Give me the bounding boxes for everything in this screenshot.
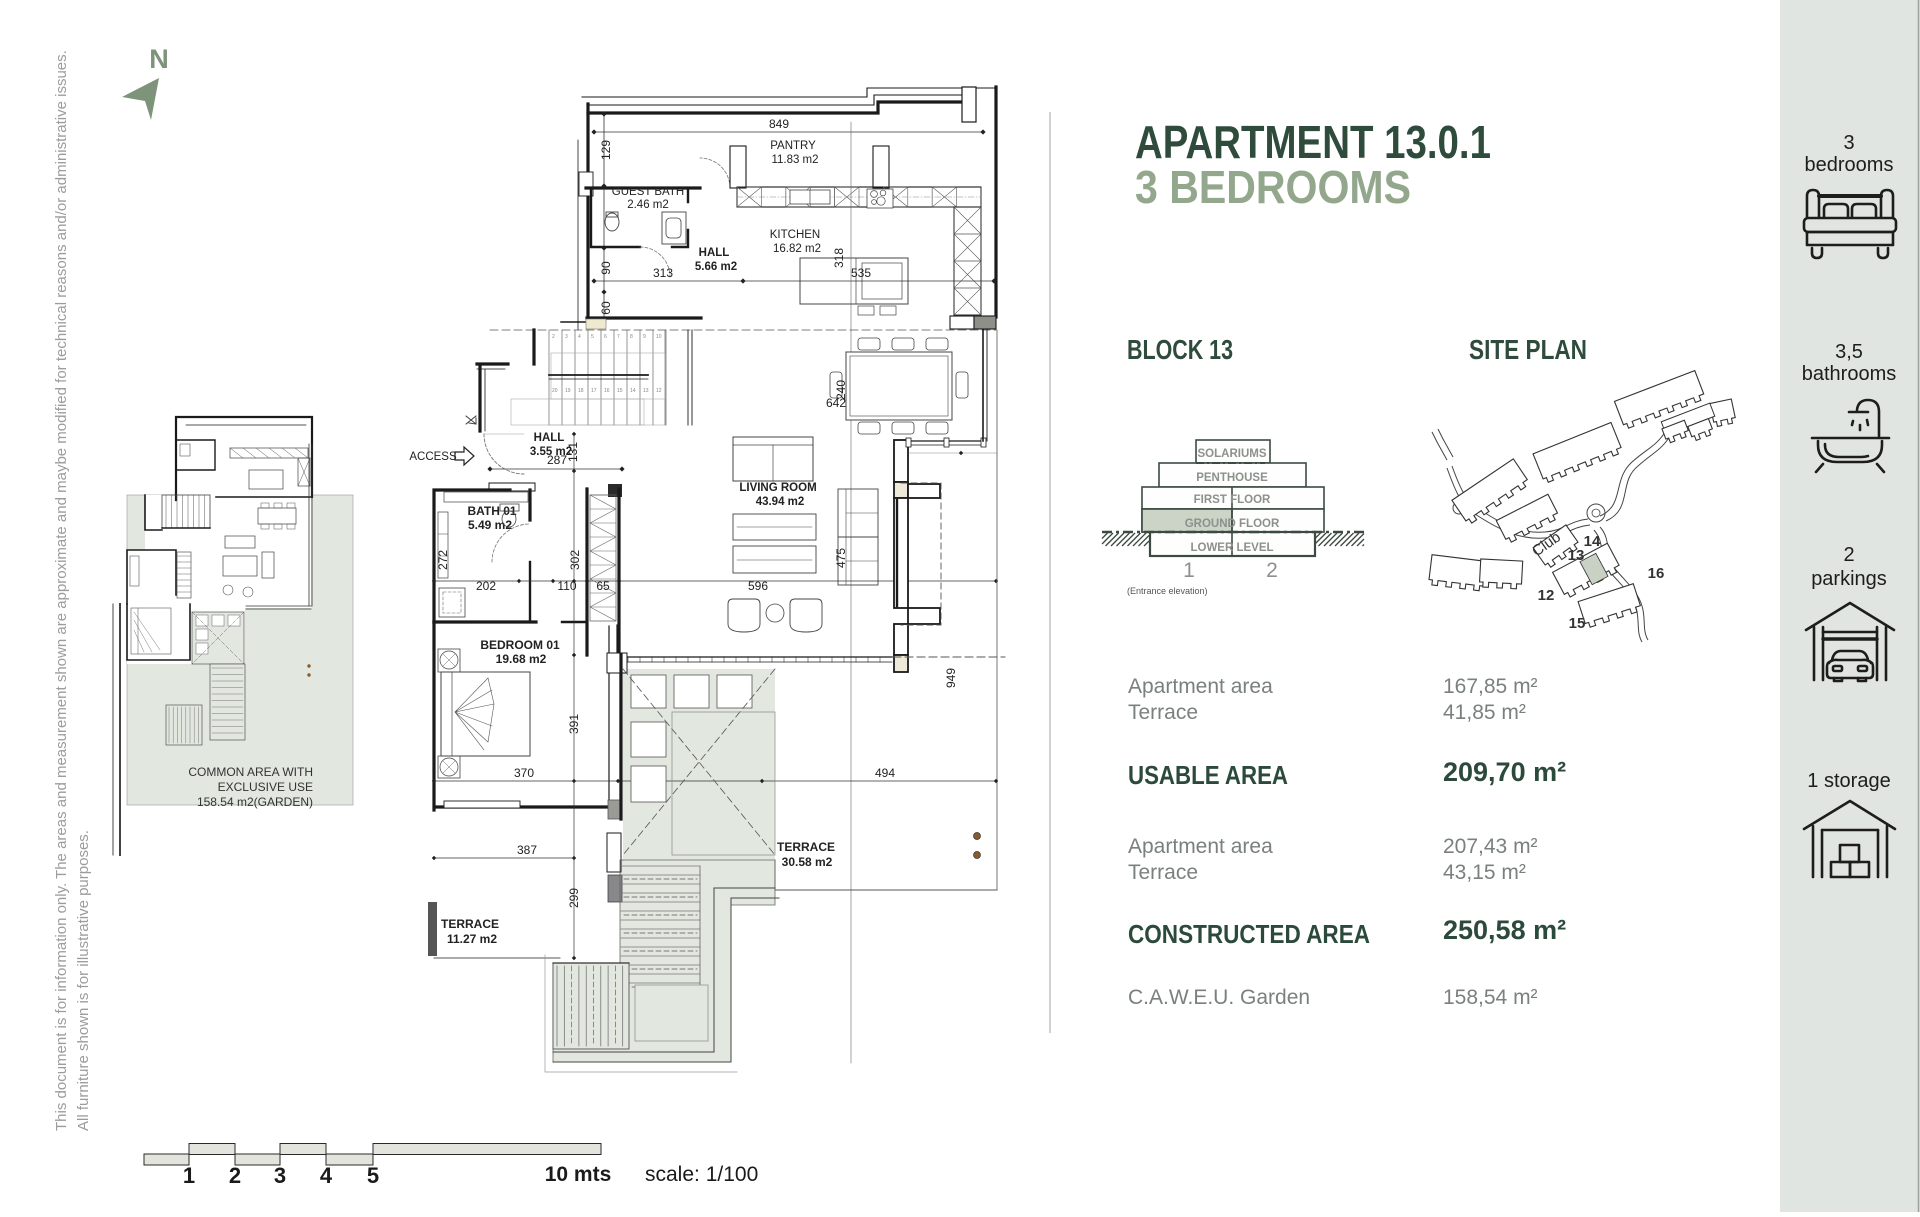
svg-text:2: 2 bbox=[552, 334, 555, 340]
svg-text:Terrace: Terrace bbox=[1128, 861, 1198, 884]
svg-text:COMMON AREA WITH: COMMON AREA WITH bbox=[188, 765, 313, 779]
svg-text:30.58 m2: 30.58 m2 bbox=[782, 855, 833, 869]
svg-text:16.82 m2: 16.82 m2 bbox=[773, 243, 821, 255]
svg-text:CONSTRUCTED AREA: CONSTRUCTED AREA bbox=[1128, 919, 1370, 949]
svg-text:3: 3 bbox=[565, 334, 568, 340]
svg-text:2: 2 bbox=[1266, 559, 1278, 582]
svg-text:PENTHOUSE: PENTHOUSE bbox=[1196, 472, 1268, 484]
svg-text:2: 2 bbox=[229, 1163, 241, 1188]
svg-text:parkings: parkings bbox=[1811, 568, 1887, 590]
svg-text:KITCHEN: KITCHEN bbox=[770, 229, 820, 241]
svg-text:5.66 m2: 5.66 m2 bbox=[695, 261, 737, 273]
svg-text:scale: 1/100: scale: 1/100 bbox=[645, 1163, 758, 1186]
svg-text:2.46 m2: 2.46 m2 bbox=[627, 199, 669, 211]
svg-text:370: 370 bbox=[514, 766, 534, 780]
svg-text:19.68 m2: 19.68 m2 bbox=[496, 652, 547, 666]
svg-text:6: 6 bbox=[604, 334, 607, 340]
svg-text:20: 20 bbox=[552, 388, 558, 394]
svg-text:GUEST BATH: GUEST BATH bbox=[612, 186, 684, 198]
svg-text:129: 129 bbox=[599, 140, 613, 160]
svg-text:C.A.W.E.U. Garden: C.A.W.E.U. Garden bbox=[1128, 986, 1310, 1009]
svg-text:EXCLUSIVE USE: EXCLUSIVE USE bbox=[218, 780, 313, 794]
svg-text:Apartment area: Apartment area bbox=[1128, 835, 1273, 858]
svg-text:BLOCK 13: BLOCK 13 bbox=[1127, 334, 1233, 365]
svg-text:14: 14 bbox=[630, 388, 636, 394]
svg-text:302: 302 bbox=[568, 550, 582, 570]
svg-text:596: 596 bbox=[748, 579, 768, 593]
svg-text:90: 90 bbox=[599, 261, 613, 275]
svg-text:(Entrance elevation): (Entrance elevation) bbox=[1127, 586, 1208, 596]
svg-text:4: 4 bbox=[320, 1163, 333, 1188]
svg-text:TERRACE: TERRACE bbox=[441, 917, 499, 931]
svg-text:1: 1 bbox=[1183, 559, 1195, 582]
svg-text:287: 287 bbox=[547, 453, 567, 467]
svg-text:18: 18 bbox=[578, 388, 584, 394]
svg-text:158.54 m2(GARDEN): 158.54 m2(GARDEN) bbox=[197, 795, 313, 809]
svg-text:19: 19 bbox=[565, 388, 571, 394]
svg-text:3: 3 bbox=[274, 1163, 286, 1188]
svg-text:131: 131 bbox=[566, 442, 580, 462]
svg-text:15: 15 bbox=[617, 388, 623, 394]
svg-text:11.27 m2: 11.27 m2 bbox=[447, 932, 497, 946]
svg-text:5: 5 bbox=[367, 1163, 379, 1188]
svg-text:313: 313 bbox=[653, 266, 673, 280]
svg-text:1 storage: 1 storage bbox=[1807, 770, 1890, 792]
svg-text:13: 13 bbox=[643, 388, 649, 394]
svg-text:bathrooms: bathrooms bbox=[1802, 363, 1897, 385]
svg-text:HALL: HALL bbox=[534, 432, 565, 444]
svg-text:60: 60 bbox=[599, 301, 613, 315]
svg-text:13: 13 bbox=[1568, 547, 1585, 564]
svg-text:15: 15 bbox=[1569, 615, 1586, 632]
svg-text:17: 17 bbox=[591, 388, 597, 394]
svg-text:299: 299 bbox=[567, 888, 581, 908]
svg-text:167,85 m²: 167,85 m² bbox=[1443, 675, 1538, 698]
svg-text:849: 849 bbox=[769, 117, 789, 131]
svg-text:4: 4 bbox=[578, 334, 581, 340]
svg-text:USABLE AREA: USABLE AREA bbox=[1128, 760, 1288, 790]
svg-text:9: 9 bbox=[643, 334, 646, 340]
svg-text:158,54 m²: 158,54 m² bbox=[1443, 986, 1538, 1009]
svg-text:GROUND FLOOR: GROUND FLOOR bbox=[1185, 518, 1280, 530]
svg-text:535: 535 bbox=[851, 266, 871, 280]
svg-text:207,43 m²: 207,43 m² bbox=[1443, 835, 1538, 858]
svg-text:SOLARIUMS: SOLARIUMS bbox=[1198, 448, 1267, 460]
svg-text:This document is for informati: This document is for information only. T… bbox=[53, 50, 70, 1131]
svg-text:43,15 m²: 43,15 m² bbox=[1443, 861, 1526, 884]
svg-text:11.83 m2: 11.83 m2 bbox=[771, 154, 818, 166]
svg-text:LIVING ROOM: LIVING ROOM bbox=[739, 482, 816, 494]
svg-text:3: 3 bbox=[1843, 132, 1854, 154]
svg-text:642: 642 bbox=[826, 396, 846, 410]
svg-text:All furniture shown is for ill: All furniture shown is for illustrative … bbox=[75, 830, 92, 1131]
svg-text:Terrace: Terrace bbox=[1128, 701, 1198, 724]
svg-text:5: 5 bbox=[591, 334, 594, 340]
svg-text:2: 2 bbox=[1843, 544, 1854, 566]
svg-text:387: 387 bbox=[517, 843, 537, 857]
svg-text:SITE PLAN: SITE PLAN bbox=[1469, 334, 1587, 365]
svg-text:N: N bbox=[149, 44, 169, 74]
svg-text:475: 475 bbox=[834, 548, 848, 568]
svg-text:494: 494 bbox=[875, 766, 895, 780]
svg-text:ACCESS: ACCESS bbox=[409, 451, 457, 463]
svg-text:12: 12 bbox=[1538, 587, 1555, 604]
svg-text:16: 16 bbox=[1648, 565, 1665, 582]
svg-text:FIRST FLOOR: FIRST FLOOR bbox=[1194, 494, 1271, 506]
svg-text:250,58 m²: 250,58 m² bbox=[1443, 915, 1566, 945]
svg-text:12: 12 bbox=[656, 388, 662, 394]
svg-text:TERRACE: TERRACE bbox=[777, 840, 835, 854]
svg-text:10: 10 bbox=[656, 334, 662, 340]
svg-text:209,70 m²: 209,70 m² bbox=[1443, 757, 1566, 787]
svg-text:272: 272 bbox=[436, 550, 450, 570]
svg-text:3 BEDROOMS: 3 BEDROOMS bbox=[1135, 161, 1411, 213]
svg-text:PANTRY: PANTRY bbox=[770, 140, 816, 152]
svg-text:Apartment area: Apartment area bbox=[1128, 675, 1273, 698]
svg-text:318: 318 bbox=[832, 248, 846, 268]
svg-text:BEDROOM 01: BEDROOM 01 bbox=[480, 638, 560, 652]
svg-text:14: 14 bbox=[1584, 533, 1601, 550]
svg-text:16: 16 bbox=[604, 388, 610, 394]
svg-text:10 mts: 10 mts bbox=[545, 1163, 612, 1186]
svg-text:1: 1 bbox=[183, 1163, 195, 1188]
svg-text:3,5: 3,5 bbox=[1835, 341, 1863, 363]
svg-text:LOWER LEVEL: LOWER LEVEL bbox=[1190, 542, 1273, 554]
svg-text:bedrooms: bedrooms bbox=[1805, 154, 1894, 176]
svg-text:HALL: HALL bbox=[699, 247, 730, 259]
svg-text:949: 949 bbox=[944, 668, 958, 688]
svg-text:202: 202 bbox=[476, 579, 496, 593]
svg-text:41,85 m²: 41,85 m² bbox=[1443, 701, 1526, 724]
svg-text:7: 7 bbox=[617, 334, 620, 340]
svg-text:43.94 m2: 43.94 m2 bbox=[756, 496, 805, 508]
svg-text:5.49 m2: 5.49 m2 bbox=[468, 518, 512, 532]
svg-text:8: 8 bbox=[630, 334, 633, 340]
